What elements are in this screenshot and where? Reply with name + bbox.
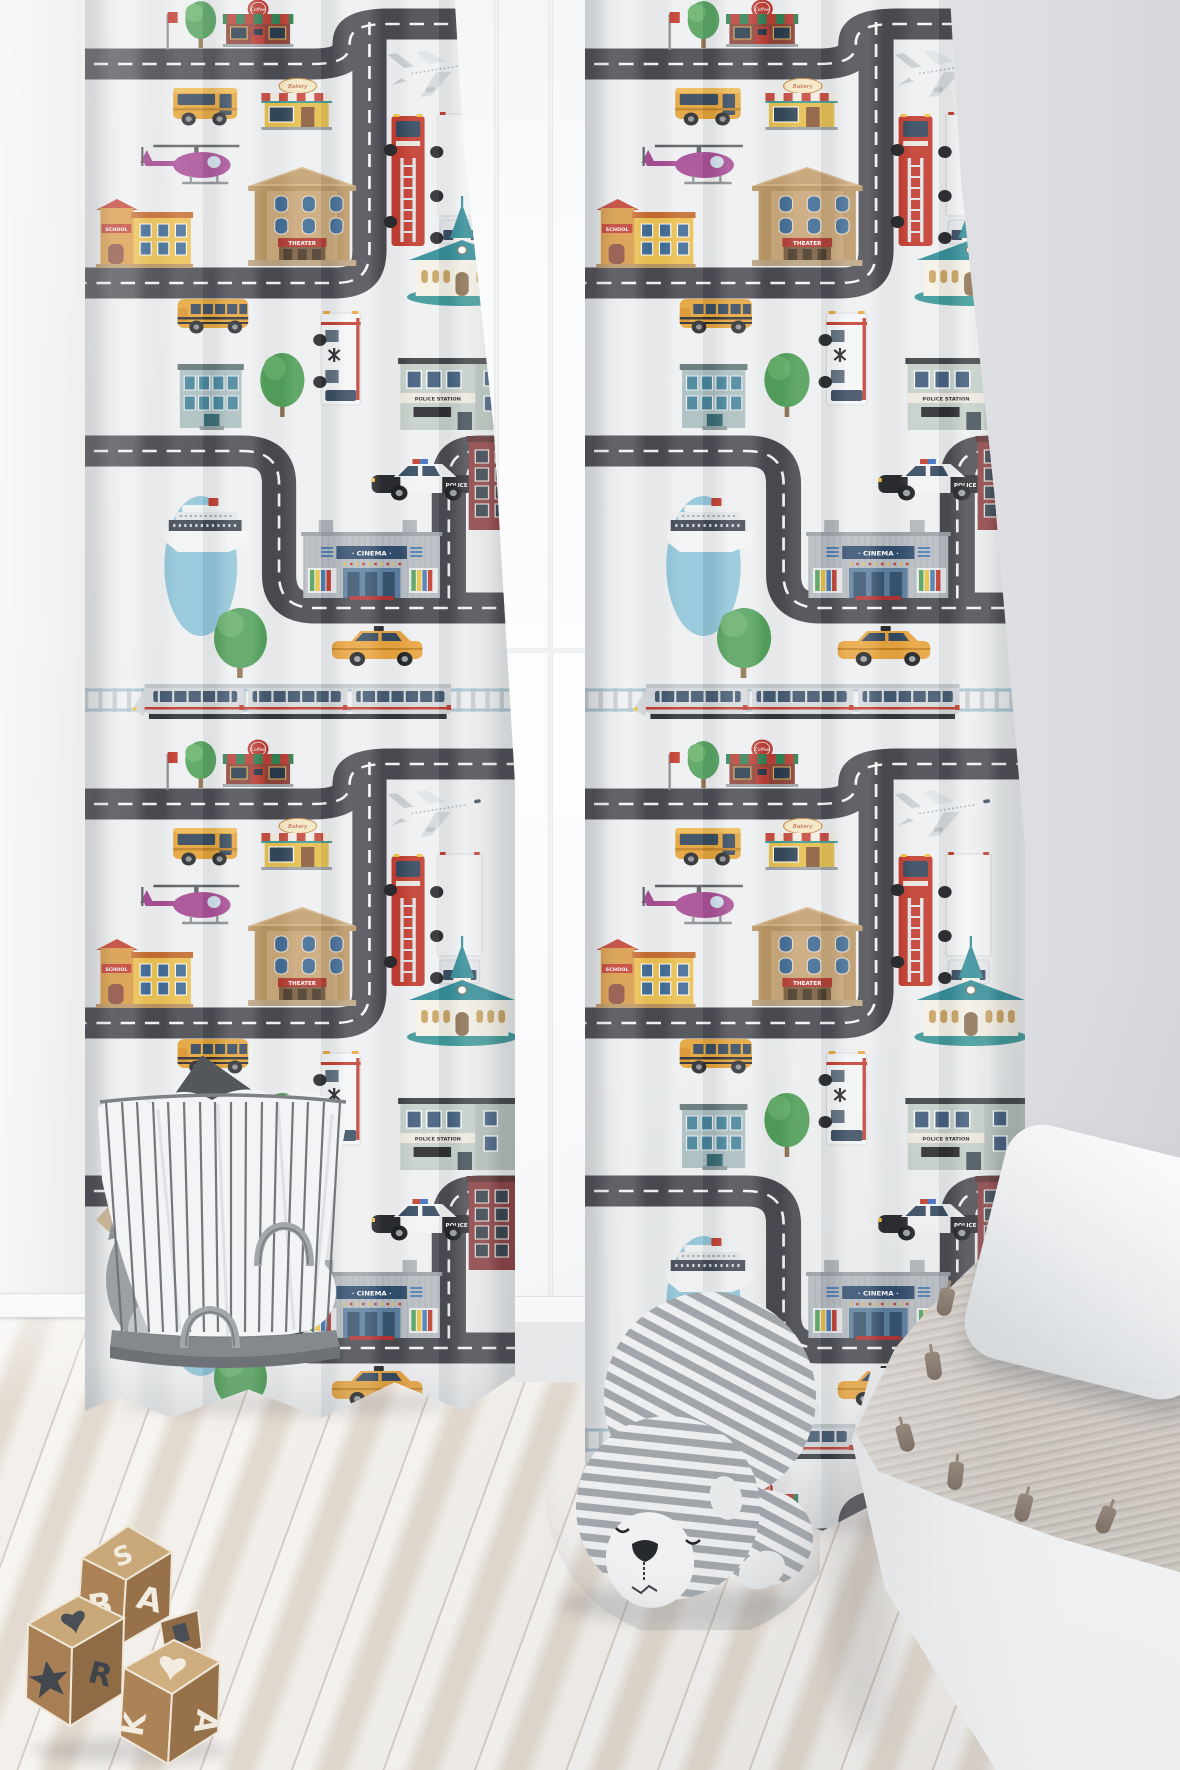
bear-shading xyxy=(545,1340,820,1630)
block-heart-KA: K A xyxy=(115,1640,224,1764)
kids-room-scene: Coffee xyxy=(0,0,1180,1770)
wooden-blocks[interactable]: S B A R K A xyxy=(20,1518,250,1770)
block-star-R: R xyxy=(26,1596,124,1726)
teddy-bear[interactable] xyxy=(520,1270,820,1630)
toy-basket[interactable]: 'S NEST ONE FLEW THE xyxy=(88,1030,358,1380)
baseboard xyxy=(0,1293,92,1317)
